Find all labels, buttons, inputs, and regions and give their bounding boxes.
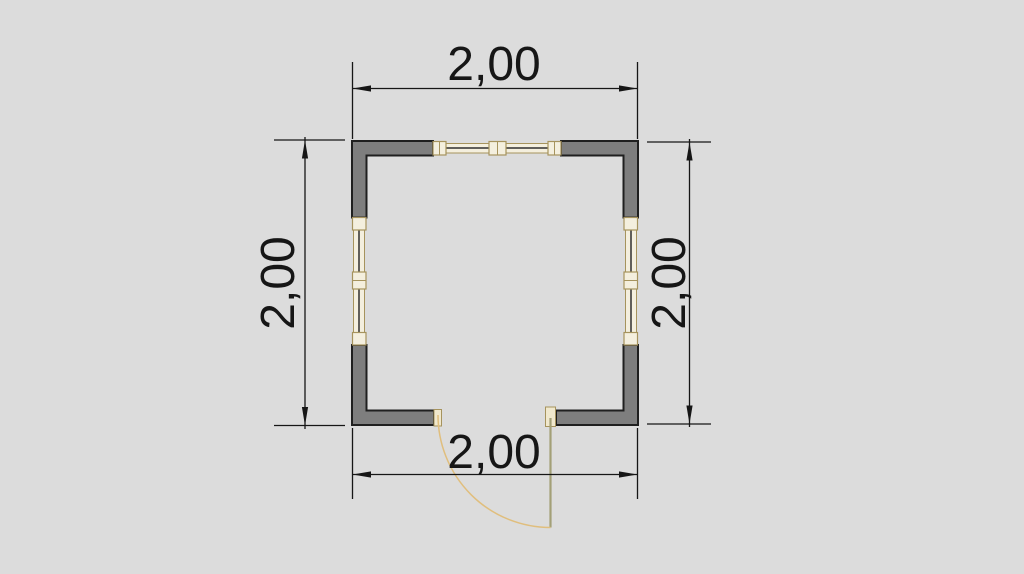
dimension-right: 2,00 [643,139,711,427]
dimension-arrow-up [302,140,308,159]
window-frame-bottom [353,333,367,346]
dimension-label-left: 2,00 [252,236,305,329]
dimension-arrow-right [619,471,638,477]
dimension-label-bottom: 2,00 [447,426,540,479]
window-left [353,218,367,346]
window-frame-top [353,218,367,231]
window-top [433,142,561,156]
dimension-bottom: 2,00 [353,426,638,499]
wall-top-left [352,141,433,218]
walls [352,141,638,425]
wall-bottom-left [352,345,434,425]
wall-top-right [561,141,638,218]
dimension-arrow-left [353,471,372,477]
dimension-arrow-down [686,406,692,425]
floor-plan-drawing: 2,00 2,00 2,00 2,00 [0,0,1024,574]
window-frame-bottom [624,333,638,346]
dimension-label-right: 2,00 [643,236,696,329]
dimension-left: 2,00 [252,137,345,429]
window-right [624,218,638,346]
dimension-arrow-down [302,407,308,426]
window-frame-top [624,218,638,231]
wall-bottom-right [556,345,638,425]
dimension-label-top: 2,00 [447,38,540,91]
dimension-arrow-left [353,85,372,91]
dimension-arrow-right [619,85,638,91]
dimension-top: 2,00 [353,38,638,139]
floor-plan-canvas: 2,00 2,00 2,00 2,00 [0,0,1024,574]
dimension-arrow-up [686,142,692,161]
